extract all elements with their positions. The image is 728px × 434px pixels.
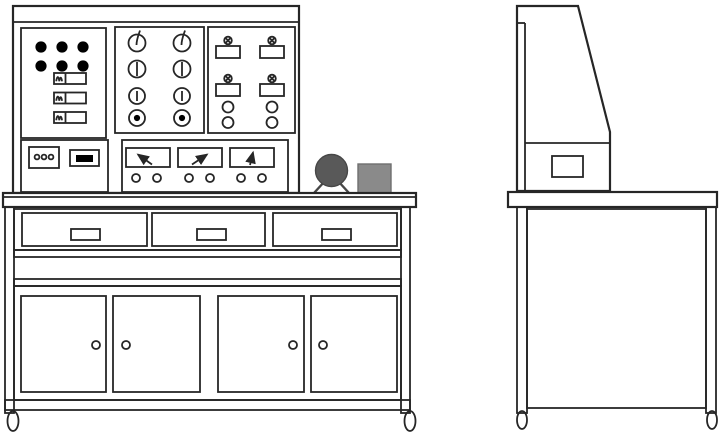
drawer xyxy=(152,213,265,246)
bench-left-frame xyxy=(5,207,14,413)
drawer-handle xyxy=(322,229,351,240)
motor xyxy=(314,155,349,194)
console-profile xyxy=(517,6,610,191)
bench-bottom-rail xyxy=(5,400,410,410)
side-tabletop xyxy=(508,192,717,207)
cabinet-door xyxy=(21,296,106,392)
front-view xyxy=(3,6,416,431)
drawer xyxy=(273,213,397,246)
bench-rail xyxy=(14,279,401,286)
workbench-technical-drawing xyxy=(0,0,728,434)
accessory-box xyxy=(358,164,391,193)
cabinet-frame xyxy=(14,286,401,400)
indicator-light-icon xyxy=(35,41,46,52)
caster-icon xyxy=(8,411,19,431)
side-left-leg xyxy=(517,207,527,413)
bench xyxy=(3,193,416,431)
drawer-handle xyxy=(197,229,226,240)
bench-rail xyxy=(14,250,401,257)
indicator-light-icon xyxy=(56,41,67,52)
drawer-handle xyxy=(71,229,100,240)
side-view xyxy=(508,6,717,429)
door-knob-icon xyxy=(122,341,130,349)
indicator-light-icon xyxy=(35,60,46,71)
side-body-panel xyxy=(527,209,706,408)
door-knob-icon xyxy=(319,341,327,349)
cabinet-door xyxy=(311,296,397,392)
cabinet-door xyxy=(113,296,200,392)
bench-right-frame xyxy=(401,207,410,413)
caster-icon xyxy=(405,411,416,431)
door-knob-icon xyxy=(289,341,297,349)
indicator-light-icon xyxy=(77,41,88,52)
tabletop xyxy=(3,193,416,207)
door-knob-icon xyxy=(92,341,100,349)
side-right-leg xyxy=(706,207,716,413)
cabinet-door xyxy=(218,296,304,392)
motor-body-icon xyxy=(316,155,348,187)
drawer xyxy=(22,213,147,246)
drawing-canvas xyxy=(0,0,728,434)
indicator-light-icon xyxy=(56,60,67,71)
indicator-light-icon xyxy=(77,60,88,71)
